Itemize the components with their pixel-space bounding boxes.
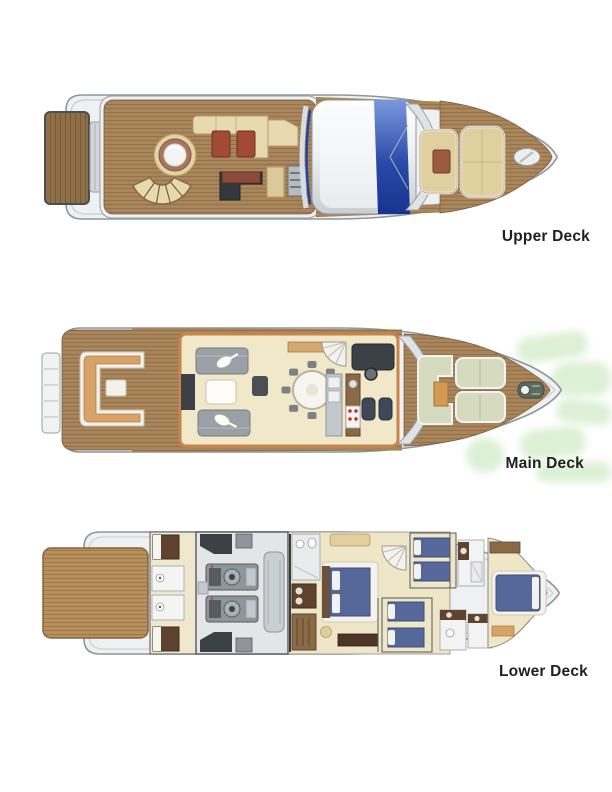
guest-bathroom — [440, 610, 492, 650]
anchor-windlass — [518, 382, 544, 398]
main-deck-plan — [0, 318, 612, 463]
guest-bathroom — [458, 540, 484, 586]
engine-room — [196, 532, 288, 654]
vip-cabin — [488, 538, 547, 648]
aft-deck-table — [106, 380, 126, 396]
bar-cabinet — [267, 167, 284, 197]
yacht-deck-plans-page: { "page": { "background": "#ffffff", "co… — [0, 0, 612, 792]
bow-sunpads — [420, 127, 504, 197]
dresser — [338, 634, 378, 646]
headboard — [322, 566, 330, 618]
salon-sofa-top — [196, 348, 248, 374]
cocktail-table — [212, 131, 230, 157]
hardtop-roof — [302, 100, 416, 214]
pillow — [332, 571, 340, 590]
guest-cabin-twin — [410, 533, 456, 588]
side-table — [321, 627, 332, 638]
helm-seat — [362, 398, 375, 420]
stern-steps — [42, 353, 60, 433]
anchor-locker — [514, 149, 540, 166]
main-deck-section — [0, 318, 612, 463]
sunroof-glass — [374, 100, 410, 214]
swim-platform — [43, 548, 148, 638]
vip-wardrobe — [490, 542, 520, 553]
sunpad-table — [433, 150, 450, 173]
pillow — [388, 604, 395, 619]
pillow — [414, 540, 421, 555]
guest-cabin-double — [382, 598, 432, 652]
main-deck-label: Main Deck — [506, 455, 584, 473]
armchair — [252, 376, 268, 396]
pillow — [414, 564, 421, 579]
tv-cabinet — [181, 374, 195, 410]
vanity — [292, 584, 316, 608]
crew-quarters — [150, 532, 196, 654]
engine-port — [206, 564, 258, 590]
pillow — [532, 577, 539, 609]
salon-sofa-bottom — [198, 410, 250, 436]
cocktail-table — [237, 131, 255, 157]
fuel-tank — [264, 552, 284, 632]
wardrobe — [292, 614, 316, 650]
pillow — [388, 630, 395, 645]
lower-deck-section — [0, 518, 612, 668]
master-sofa — [330, 534, 370, 546]
jacuzzi — [154, 134, 196, 176]
helm-seat — [379, 398, 392, 420]
lower-deck-plan — [0, 518, 612, 668]
lower-deck-label: Lower Deck — [499, 663, 588, 681]
steering-wheel — [365, 368, 377, 380]
upper-deck-label: Upper Deck — [502, 228, 590, 246]
stove — [346, 406, 360, 428]
sunpad-table — [434, 382, 448, 406]
coffee-table — [206, 380, 236, 404]
engine-starboard — [206, 596, 258, 622]
vip-seat — [492, 626, 514, 636]
pillow — [332, 594, 340, 613]
tender-platform — [45, 112, 105, 204]
galley-sink — [349, 380, 357, 388]
